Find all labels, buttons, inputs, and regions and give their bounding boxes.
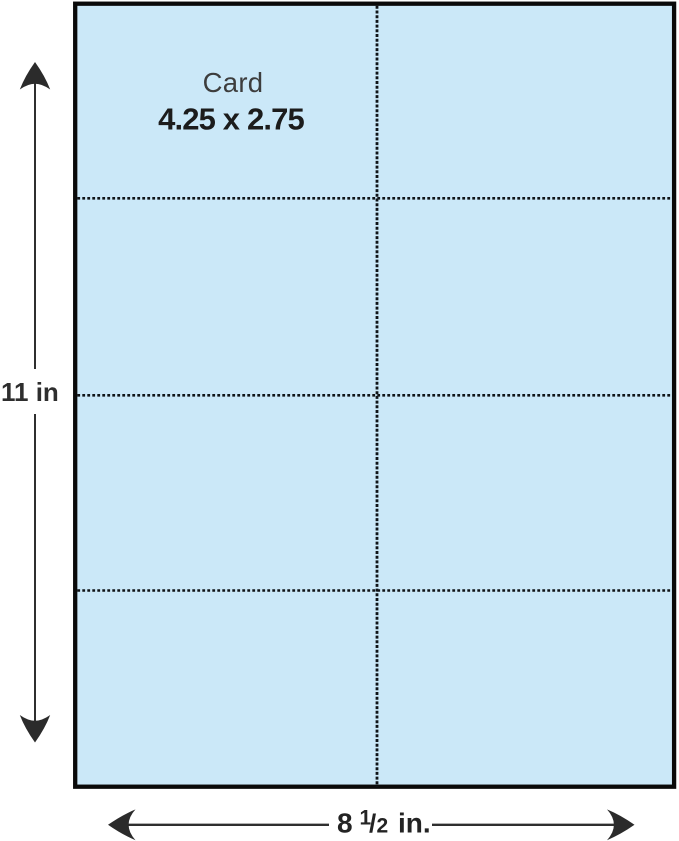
svg-text:11 in: 11 in	[1, 377, 59, 407]
svg-text:Card: Card	[203, 67, 264, 98]
svg-text:4.25 x 2.75: 4.25 x 2.75	[158, 102, 304, 137]
